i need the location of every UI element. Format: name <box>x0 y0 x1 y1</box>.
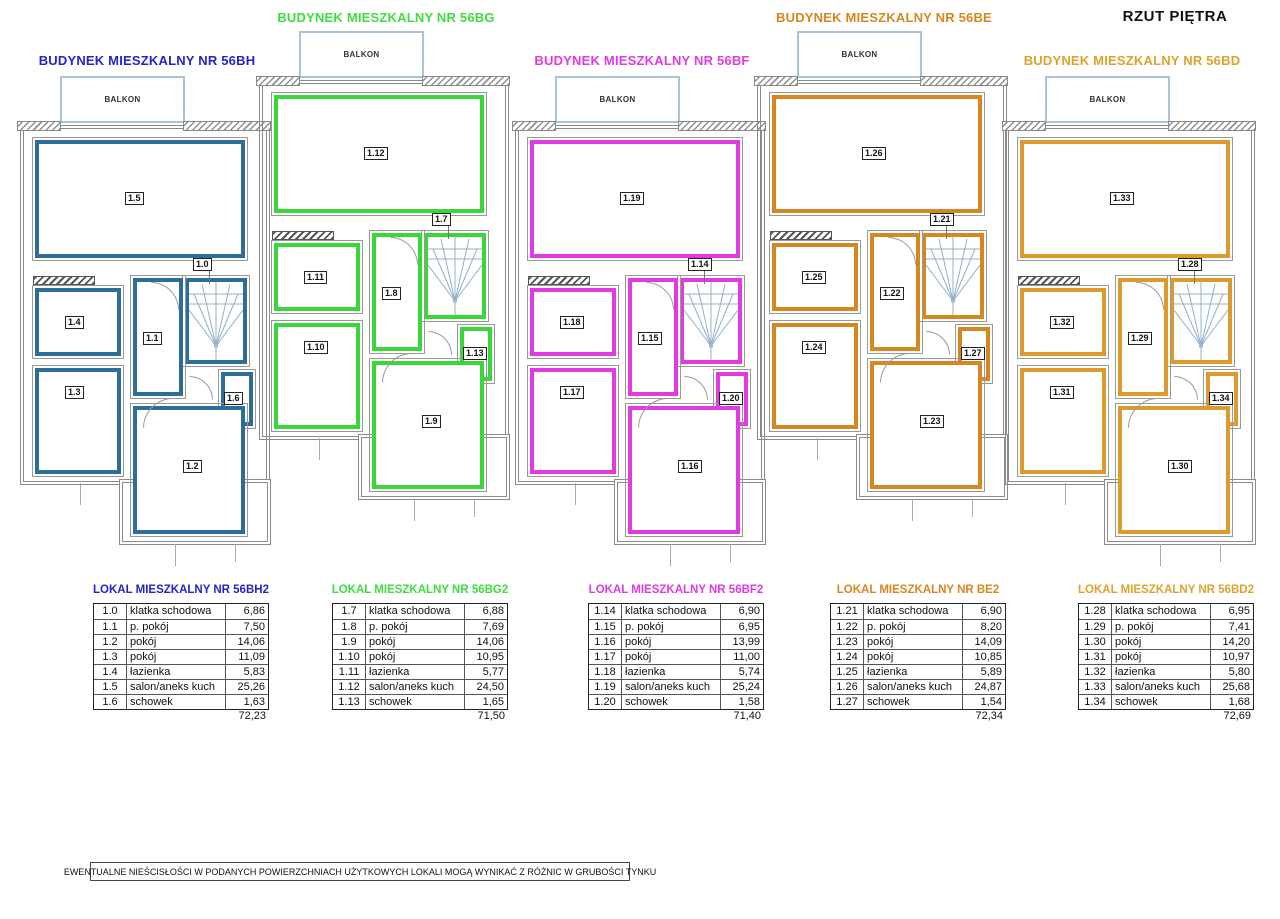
room-label: 1.32 <box>1050 316 1074 329</box>
room-label: 1.30 <box>1168 460 1192 473</box>
room-name-cell: pokój <box>1112 650 1211 664</box>
room-name-cell: schowek <box>622 695 721 709</box>
room-name-cell: klatka schodowa <box>1112 604 1211 619</box>
balcony-outline: BALKON <box>797 31 922 78</box>
room-name-cell: pokój <box>1112 635 1211 649</box>
room-area-cell: 1,63 <box>226 695 268 709</box>
room-name-cell: p. pokój <box>1112 620 1211 634</box>
table-row: 1.13schowek1,65 <box>333 694 507 709</box>
table-row: 1.19salon/aneks kuch25,24 <box>589 679 763 694</box>
room-label: 1.5 <box>125 192 144 205</box>
dimension-line <box>1065 483 1066 505</box>
stairs-icon <box>189 282 243 360</box>
room-label: 1.6 <box>224 392 243 405</box>
room-label: 1.33 <box>1110 192 1134 205</box>
table-row: 1.10pokój10,95 <box>333 649 507 664</box>
room-name-cell: schowek <box>127 695 226 709</box>
table-title: LOKAL MIESZKALNY NR 56BG2 <box>312 584 528 596</box>
room-area-cell: 6,88 <box>465 604 507 619</box>
room-area-cell: 25,24 <box>721 680 763 694</box>
room-area-cell: 13,99 <box>721 635 763 649</box>
room-name-cell: salon/aneks kuch <box>1112 680 1211 694</box>
room-staircase <box>1170 278 1232 364</box>
table-total: 72,69 <box>1078 710 1254 722</box>
table-row: 1.16pokój13,99 <box>589 634 763 649</box>
room-label: 1.27 <box>961 347 985 360</box>
floor-plan: BALKON <box>762 85 1002 500</box>
dimension-line <box>670 544 671 566</box>
room-label: 1.12 <box>364 147 388 160</box>
room-label: 1.22 <box>880 287 904 300</box>
table-row: 1.24pokój10,85 <box>831 649 1005 664</box>
label-leader-line <box>1194 270 1195 284</box>
wall-hatch-right <box>1168 121 1256 131</box>
room-name-cell: pokój <box>622 635 721 649</box>
room-label: 1.7 <box>432 213 451 226</box>
room-name-cell: łazienka <box>864 665 963 679</box>
table-row: 1.23pokój14,09 <box>831 634 1005 649</box>
room-label: 1.29 <box>1128 332 1152 345</box>
table-total: 72,34 <box>830 710 1006 722</box>
room-area-cell: 11,00 <box>721 650 763 664</box>
dimension-line <box>575 483 576 505</box>
table-row: 1.15p. pokój6,95 <box>589 619 763 634</box>
room-area-cell: 10,97 <box>1211 650 1253 664</box>
room-area-cell: 1,54 <box>963 695 1005 709</box>
room-label: 1.16 <box>678 460 702 473</box>
room-id-cell: 1.12 <box>333 680 366 694</box>
table-row: 1.34schowek1,68 <box>1079 694 1253 709</box>
room-label: 1.1 <box>143 332 162 345</box>
table-row: 1.1p. pokój7,50 <box>94 619 268 634</box>
building-title: BUDYNEK MIESZKALNY NR 56BE <box>754 10 1014 25</box>
wall-hatch-left <box>1002 121 1046 131</box>
dimension-line <box>1220 544 1221 562</box>
room-label: 1.15 <box>638 332 662 345</box>
balcony-label: BALKON <box>841 50 877 59</box>
room-id-cell: 1.16 <box>589 635 622 649</box>
room-left <box>274 323 360 429</box>
room-id-cell: 1.0 <box>94 604 127 619</box>
room-label: 1.18 <box>560 316 584 329</box>
dimension-line <box>972 499 973 517</box>
room-id-cell: 1.18 <box>589 665 622 679</box>
building-title: BUDYNEK MIESZKALNY NR 56BG <box>256 10 516 25</box>
room-area-cell: 6,95 <box>1211 604 1253 619</box>
room-left <box>530 368 616 474</box>
room-name-cell: salon/aneks kuch <box>622 680 721 694</box>
room-area-cell: 24,50 <box>465 680 507 694</box>
wall-hatch-left <box>256 76 300 86</box>
room-id-cell: 1.20 <box>589 695 622 709</box>
room-area-cell: 5,74 <box>721 665 763 679</box>
room-name-cell: pokój <box>622 650 721 664</box>
balcony-label: BALKON <box>1089 95 1125 104</box>
room-id-cell: 1.24 <box>831 650 864 664</box>
floor-plan: BALKON <box>264 85 504 500</box>
room-id-cell: 1.32 <box>1079 665 1112 679</box>
stairs-icon <box>428 237 482 315</box>
floor-plan: BALKON <box>520 130 760 545</box>
room-area-cell: 14,09 <box>963 635 1005 649</box>
balcony-outline: BALKON <box>555 76 680 123</box>
room-id-cell: 1.15 <box>589 620 622 634</box>
room-area-cell: 6,86 <box>226 604 268 619</box>
room-id-cell: 1.9 <box>333 635 366 649</box>
room-id-cell: 1.3 <box>94 650 127 664</box>
room-label: 1.17 <box>560 386 584 399</box>
room-label: 1.2 <box>183 460 202 473</box>
wall-hatch-right <box>920 76 1008 86</box>
table-row: 1.2pokój14,06 <box>94 634 268 649</box>
table-row: 1.33salon/aneks kuch25,68 <box>1079 679 1253 694</box>
room-area-cell: 25,26 <box>226 680 268 694</box>
label-leader-line <box>704 270 705 284</box>
table-title: LOKAL MIESZKALNY NR 56BF2 <box>568 584 784 596</box>
floor-plan: BALKON <box>1010 130 1250 545</box>
room-label: 1.4 <box>65 316 84 329</box>
table-row: 1.9pokój14,06 <box>333 634 507 649</box>
room-name-cell: p. pokój <box>127 620 226 634</box>
stairs-icon <box>684 282 738 360</box>
room-name-cell: schowek <box>366 695 465 709</box>
building-title: BUDYNEK MIESZKALNY NR 56BF <box>512 53 772 68</box>
room-id-cell: 1.21 <box>831 604 864 619</box>
dimension-line <box>175 544 176 566</box>
table-row: 1.27schowek1,54 <box>831 694 1005 709</box>
room-id-cell: 1.11 <box>333 665 366 679</box>
stairs-icon <box>926 237 980 315</box>
room-label: 1.25 <box>802 271 826 284</box>
room-label: 1.31 <box>1050 386 1074 399</box>
building: BUDYNEK MIESZKALNY NR 56BG BALKON <box>264 0 509 780</box>
room-label: 1.19 <box>620 192 644 205</box>
room-name-cell: salon/aneks kuch <box>864 680 963 694</box>
room-name-cell: pokój <box>366 635 465 649</box>
insulation-hatch <box>272 231 334 240</box>
room-staircase <box>424 233 486 319</box>
room-id-cell: 1.27 <box>831 695 864 709</box>
room-name-cell: schowek <box>864 695 963 709</box>
area-table: 1.7klatka schodowa6,881.8p. pokój7,691.9… <box>332 603 508 710</box>
insulation-hatch <box>770 231 832 240</box>
room-name-cell: pokój <box>127 650 226 664</box>
label-leader-line <box>946 225 947 239</box>
room-name-cell: salon/aneks kuch <box>366 680 465 694</box>
dimension-line <box>817 438 818 460</box>
room-area-cell: 24,87 <box>963 680 1005 694</box>
table-row: 1.0klatka schodowa6,86 <box>94 604 268 619</box>
room-left <box>35 368 121 474</box>
insulation-hatch <box>1018 276 1080 285</box>
room-name-cell: p. pokój <box>864 620 963 634</box>
wall-hatch-right <box>422 76 510 86</box>
area-table: 1.14klatka schodowa6,901.15p. pokój6,951… <box>588 603 764 710</box>
table-row: 1.21klatka schodowa6,90 <box>831 604 1005 619</box>
table-row: 1.30pokój14,20 <box>1079 634 1253 649</box>
insulation-hatch <box>528 276 590 285</box>
room-area-cell: 25,68 <box>1211 680 1253 694</box>
table-row: 1.32łazienka5,80 <box>1079 664 1253 679</box>
room-area-cell: 11,09 <box>226 650 268 664</box>
table-row: 1.11łazienka5,77 <box>333 664 507 679</box>
dimension-line <box>474 499 475 517</box>
table-row: 1.4łazienka5,83 <box>94 664 268 679</box>
room-id-cell: 1.6 <box>94 695 127 709</box>
building-title: BUDYNEK MIESZKALNY NR 56BD <box>1002 53 1262 68</box>
wall-hatch-left <box>17 121 61 131</box>
table-total: 72,23 <box>93 710 269 722</box>
footer-note: EWENTUALNE NIEŚCISŁOŚCI W PODANYCH POWIE… <box>90 862 630 881</box>
room-label: 1.11 <box>304 271 327 284</box>
table-row: 1.12salon/aneks kuch24,50 <box>333 679 507 694</box>
room-label: 1.26 <box>862 147 886 160</box>
room-staircase <box>185 278 247 364</box>
room-name-cell: łazienka <box>366 665 465 679</box>
table-row: 1.6schowek1,63 <box>94 694 268 709</box>
room-id-cell: 1.17 <box>589 650 622 664</box>
wall-hatch-right <box>183 121 271 131</box>
room-staircase <box>922 233 984 319</box>
table-title: LOKAL MIESZKALNY NR 56BH2 <box>73 584 289 596</box>
room-label: 1.20 <box>719 392 743 405</box>
room-area-cell: 14,20 <box>1211 635 1253 649</box>
area-table: 1.0klatka schodowa6,861.1p. pokój7,501.2… <box>93 603 269 710</box>
table-title: LOKAL MIESZKALNY NR BE2 <box>810 584 1026 596</box>
room-id-cell: 1.28 <box>1079 604 1112 619</box>
room-id-cell: 1.23 <box>831 635 864 649</box>
room-area-cell: 7,50 <box>226 620 268 634</box>
room-area-cell: 1,68 <box>1211 695 1253 709</box>
room-name-cell: schowek <box>1112 695 1211 709</box>
dimension-line <box>235 544 236 562</box>
dimension-line <box>414 499 415 521</box>
room-name-cell: klatka schodowa <box>366 604 465 619</box>
building: BUDYNEK MIESZKALNY NR 56BH BALKON <box>25 0 270 780</box>
room-id-cell: 1.34 <box>1079 695 1112 709</box>
building-title: BUDYNEK MIESZKALNY NR 56BH <box>17 53 277 68</box>
room-area-cell: 8,20 <box>963 620 1005 634</box>
room-label: 1.0 <box>193 258 212 271</box>
room-id-cell: 1.7 <box>333 604 366 619</box>
room-label: 1.21 <box>930 213 954 226</box>
room-label: 1.24 <box>802 341 826 354</box>
room-id-cell: 1.10 <box>333 650 366 664</box>
room-id-cell: 1.30 <box>1079 635 1112 649</box>
wall-hatch-right <box>678 121 766 131</box>
room-area-cell: 6,90 <box>721 604 763 619</box>
room-name-cell: pokój <box>366 650 465 664</box>
room-label: 1.10 <box>304 341 328 354</box>
room-name-cell: klatka schodowa <box>127 604 226 619</box>
room-staircase <box>680 278 742 364</box>
balcony-outline: BALKON <box>60 76 185 123</box>
balcony-outline: BALKON <box>299 31 424 78</box>
room-name-cell: klatka schodowa <box>864 604 963 619</box>
table-row: 1.5salon/aneks kuch25,26 <box>94 679 268 694</box>
room-id-cell: 1.25 <box>831 665 864 679</box>
table-row: 1.26salon/aneks kuch24,87 <box>831 679 1005 694</box>
room-left <box>1020 368 1106 474</box>
dimension-line <box>912 499 913 521</box>
room-area-cell: 5,80 <box>1211 665 1253 679</box>
area-table: 1.28klatka schodowa6,951.29p. pokój7,411… <box>1078 603 1254 710</box>
room-name-cell: pokój <box>864 650 963 664</box>
table-row: 1.28klatka schodowa6,95 <box>1079 604 1253 619</box>
room-id-cell: 1.22 <box>831 620 864 634</box>
table-row: 1.25łazienka5,89 <box>831 664 1005 679</box>
table-row: 1.14klatka schodowa6,90 <box>589 604 763 619</box>
balcony-label: BALKON <box>599 95 635 104</box>
room-name-cell: klatka schodowa <box>622 604 721 619</box>
room-area-cell: 6,90 <box>963 604 1005 619</box>
room-area-cell: 14,06 <box>226 635 268 649</box>
room-name-cell: salon/aneks kuch <box>127 680 226 694</box>
wall-hatch-left <box>754 76 798 86</box>
table-total: 71,50 <box>332 710 508 722</box>
table-row: 1.8p. pokój7,69 <box>333 619 507 634</box>
building: BUDYNEK MIESZKALNY NR 56BF BALKON <box>520 0 765 780</box>
room-left <box>772 323 858 429</box>
room-id-cell: 1.5 <box>94 680 127 694</box>
room-area-cell: 6,95 <box>721 620 763 634</box>
room-label: 1.34 <box>1209 392 1233 405</box>
room-id-cell: 1.2 <box>94 635 127 649</box>
room-label: 1.23 <box>920 415 944 428</box>
room-name-cell: łazienka <box>1112 665 1211 679</box>
table-row: 1.17pokój11,00 <box>589 649 763 664</box>
room-id-cell: 1.26 <box>831 680 864 694</box>
room-area-cell: 1,58 <box>721 695 763 709</box>
building: BUDYNEK MIESZKALNY NR 56BD BALKON <box>1010 0 1255 780</box>
dimension-line <box>730 544 731 562</box>
room-name-cell: p. pokój <box>366 620 465 634</box>
room-id-cell: 1.19 <box>589 680 622 694</box>
table-row: 1.20schowek1,58 <box>589 694 763 709</box>
dimension-line <box>319 438 320 460</box>
room-id-cell: 1.1 <box>94 620 127 634</box>
room-label: 1.28 <box>1178 258 1202 271</box>
balcony-label: BALKON <box>104 95 140 104</box>
room-label: 1.9 <box>422 415 441 428</box>
insulation-hatch <box>33 276 95 285</box>
balcony-outline: BALKON <box>1045 76 1170 123</box>
room-area-cell: 5,89 <box>963 665 1005 679</box>
room-label: 1.3 <box>65 386 84 399</box>
room-area-cell: 10,95 <box>465 650 507 664</box>
floor-plan: BALKON <box>25 130 265 545</box>
room-id-cell: 1.4 <box>94 665 127 679</box>
room-area-cell: 5,77 <box>465 665 507 679</box>
room-label: 1.13 <box>463 347 487 360</box>
table-title: LOKAL MIESZKALNY NR 56BD2 <box>1058 584 1274 596</box>
dimension-line <box>1160 544 1161 566</box>
table-row: 1.31pokój10,97 <box>1079 649 1253 664</box>
table-row: 1.7klatka schodowa6,88 <box>333 604 507 619</box>
wall-hatch-left <box>512 121 556 131</box>
label-leader-line <box>448 225 449 239</box>
room-name-cell: pokój <box>127 635 226 649</box>
room-name-cell: p. pokój <box>622 620 721 634</box>
room-label: 1.14 <box>688 258 712 271</box>
room-name-cell: łazienka <box>622 665 721 679</box>
room-label: 1.8 <box>382 287 401 300</box>
room-id-cell: 1.13 <box>333 695 366 709</box>
dimension-line <box>80 483 81 505</box>
table-row: 1.22p. pokój8,20 <box>831 619 1005 634</box>
room-id-cell: 1.29 <box>1079 620 1112 634</box>
building: BUDYNEK MIESZKALNY NR 56BE BALKON <box>762 0 1007 780</box>
floor-plan-sheet: RZUT PIĘTRA BUDYNEK MIESZKALNY NR 56BH B… <box>0 0 1280 919</box>
room-name-cell: łazienka <box>127 665 226 679</box>
room-id-cell: 1.8 <box>333 620 366 634</box>
room-name-cell: pokój <box>864 635 963 649</box>
room-id-cell: 1.33 <box>1079 680 1112 694</box>
room-area-cell: 5,83 <box>226 665 268 679</box>
label-leader-line <box>209 270 210 284</box>
room-area-cell: 10,85 <box>963 650 1005 664</box>
balcony-label: BALKON <box>343 50 379 59</box>
table-total: 71,40 <box>588 710 764 722</box>
table-row: 1.29p. pokój7,41 <box>1079 619 1253 634</box>
room-area-cell: 1,65 <box>465 695 507 709</box>
stairs-icon <box>1174 282 1228 360</box>
room-area-cell: 14,06 <box>465 635 507 649</box>
area-table: 1.21klatka schodowa6,901.22p. pokój8,201… <box>830 603 1006 710</box>
room-id-cell: 1.14 <box>589 604 622 619</box>
room-area-cell: 7,69 <box>465 620 507 634</box>
table-row: 1.18łazienka5,74 <box>589 664 763 679</box>
table-row: 1.3pokój11,09 <box>94 649 268 664</box>
room-id-cell: 1.31 <box>1079 650 1112 664</box>
room-area-cell: 7,41 <box>1211 620 1253 634</box>
